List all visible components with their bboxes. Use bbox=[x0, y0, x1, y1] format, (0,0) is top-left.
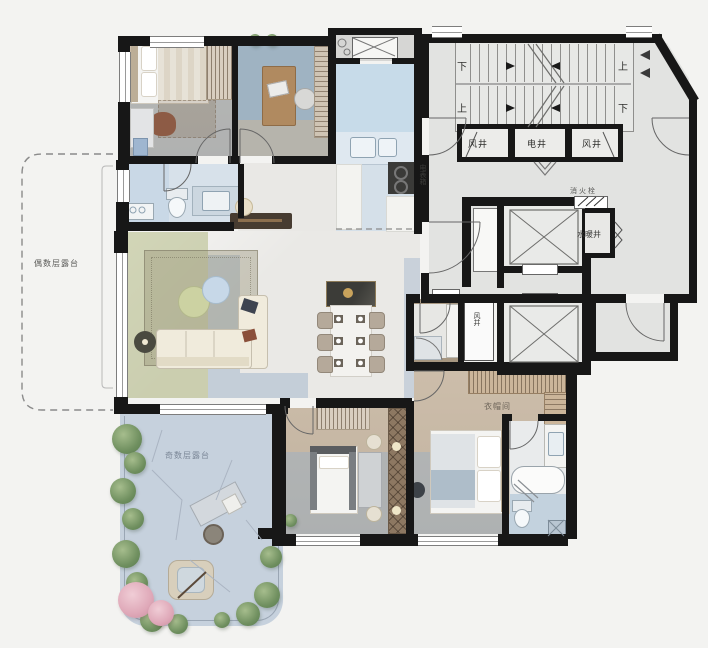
water-shaft-label: 水暖井 bbox=[577, 229, 601, 240]
entry-bath-shaft bbox=[464, 299, 494, 361]
core-wall-right bbox=[689, 96, 697, 303]
living-blue-wash-south bbox=[240, 373, 308, 398]
bedroom2-west-window bbox=[119, 52, 131, 102]
tree bbox=[112, 424, 142, 454]
sideboard-kettle bbox=[343, 288, 353, 298]
living-south-window bbox=[160, 404, 266, 415]
bed2-headboard bbox=[131, 42, 138, 102]
bath-west-window bbox=[117, 170, 130, 202]
study-desk bbox=[262, 66, 296, 126]
bed2-pillow bbox=[141, 46, 157, 71]
fire-pit bbox=[203, 524, 224, 545]
stove-burner bbox=[394, 166, 408, 180]
master-pillow bbox=[477, 436, 501, 468]
wall bbox=[118, 36, 130, 52]
ebath-shower-tray bbox=[414, 336, 442, 360]
wall bbox=[228, 156, 240, 164]
dining-chair bbox=[369, 356, 385, 373]
shaft-label-electric: 电井 bbox=[527, 137, 547, 150]
water-shaft-wall bbox=[585, 253, 615, 258]
suite-east-wall bbox=[566, 371, 577, 539]
elevator-1-cab bbox=[504, 206, 584, 268]
bed3-nightstand bbox=[366, 506, 382, 522]
dining-chair bbox=[317, 356, 333, 373]
bedroom2-wardrobe bbox=[206, 40, 234, 100]
wall bbox=[232, 36, 238, 158]
kitchen-sink bbox=[378, 138, 397, 157]
hydrant-label: 消火栓 bbox=[570, 186, 597, 196]
core-window bbox=[432, 26, 462, 38]
elevator-sub-shaft bbox=[473, 208, 498, 272]
kitchen-counter-east bbox=[386, 196, 416, 232]
core-window bbox=[626, 26, 652, 38]
mbath-sink bbox=[548, 432, 564, 456]
bedroom2-book bbox=[133, 138, 148, 156]
wall bbox=[204, 36, 336, 46]
wall bbox=[118, 102, 130, 162]
wardrobe-knob bbox=[392, 442, 401, 451]
shaft-label-wind-1: 风井 bbox=[468, 137, 488, 150]
bedroom2-window bbox=[150, 36, 204, 48]
even-terrace-inner-line bbox=[102, 166, 113, 388]
master-wardrobe-column bbox=[388, 408, 408, 534]
laundry-counter bbox=[128, 203, 154, 220]
terrace-tub-water bbox=[177, 567, 205, 593]
odd-terrace-label: 奇数层露台 bbox=[165, 450, 210, 461]
vent-shaft-wall bbox=[328, 28, 422, 35]
bed2-duvet bbox=[158, 43, 206, 101]
stair-mid-landing-line bbox=[456, 83, 631, 85]
vent-box bbox=[352, 37, 398, 59]
bed3-side-rail bbox=[349, 452, 356, 510]
bathtub bbox=[511, 466, 565, 494]
bed2-pillow bbox=[141, 72, 157, 97]
dining-chair bbox=[317, 334, 333, 351]
ebath-west-wall bbox=[406, 294, 414, 364]
tree bbox=[260, 546, 282, 568]
alcove-wall bbox=[588, 352, 678, 361]
elevator-wall-left-upper bbox=[462, 197, 471, 287]
suite-west-wall bbox=[406, 411, 414, 536]
sofa-back bbox=[157, 357, 249, 366]
dining-chair bbox=[317, 312, 333, 329]
alcove-wall bbox=[670, 303, 678, 361]
stair-flight-lower bbox=[470, 86, 616, 128]
stair-label-lower-left: 上 bbox=[457, 100, 468, 115]
south-wall bbox=[360, 534, 418, 546]
closet-label: 衣帽间 bbox=[484, 401, 511, 412]
wall bbox=[332, 58, 360, 64]
wall bbox=[114, 231, 128, 253]
dining-chair bbox=[369, 312, 385, 329]
mbath-north-wall bbox=[538, 414, 568, 421]
stair-label-upper-right: 上 bbox=[618, 58, 629, 73]
shaft-divider bbox=[508, 124, 515, 162]
tree bbox=[122, 508, 144, 530]
wall bbox=[114, 404, 160, 414]
terrace-east-wall bbox=[272, 404, 286, 546]
core-wall-bottom bbox=[664, 294, 697, 303]
bed3-nightstand bbox=[366, 434, 382, 450]
stove-burner bbox=[394, 180, 408, 194]
kitchen-counter-west bbox=[336, 164, 362, 230]
water-shaft-wall bbox=[610, 208, 615, 258]
shaft-divider bbox=[565, 124, 572, 162]
stair-label-upper-left: 下 bbox=[457, 58, 468, 73]
elevator-divider bbox=[497, 202, 504, 288]
suite-north-wall bbox=[406, 362, 590, 371]
tree bbox=[110, 478, 136, 504]
meter-box-label: 电表箱 bbox=[418, 164, 428, 185]
wall bbox=[392, 58, 414, 64]
floor-lamp-bulb bbox=[142, 339, 148, 345]
wall bbox=[280, 398, 290, 408]
wall bbox=[116, 222, 234, 231]
tree bbox=[124, 452, 146, 474]
tree bbox=[254, 582, 280, 608]
stair-label-lower-right: 下 bbox=[618, 100, 629, 115]
entry-bath-shaft-label: 风井 bbox=[472, 312, 482, 326]
master-window bbox=[418, 536, 498, 546]
ebath-east-wall bbox=[458, 296, 464, 362]
wardrobe-knob bbox=[392, 506, 401, 515]
even-terrace-dashed-outline bbox=[22, 154, 113, 410]
master-throw bbox=[431, 470, 475, 500]
bed3-bench bbox=[358, 452, 382, 508]
wall bbox=[238, 164, 244, 218]
dining-table bbox=[330, 305, 372, 377]
utility-room-floor bbox=[336, 64, 414, 132]
tree bbox=[236, 602, 260, 626]
elevator-1-door bbox=[522, 264, 558, 275]
south-wall bbox=[272, 534, 296, 546]
neighbor-alcove-floor bbox=[596, 303, 670, 352]
shaft-label-wind-2: 风井 bbox=[582, 137, 602, 150]
wall bbox=[316, 398, 412, 408]
core-wall-left bbox=[421, 34, 429, 118]
stair-flight-upper bbox=[470, 44, 616, 82]
south-wall bbox=[498, 534, 568, 546]
tree bbox=[112, 540, 140, 568]
study-chair bbox=[294, 88, 316, 110]
hall-console-runner bbox=[238, 219, 282, 222]
even-terrace-label: 偶数层露台 bbox=[34, 258, 79, 269]
elevator-wall-top bbox=[462, 197, 590, 206]
mbath-west-wall bbox=[502, 414, 509, 539]
floor-plan: 偶数层露台 奇数层露台 风井 电井 风井 消火栓 水暖井 电表箱 衣帽间 风井 … bbox=[0, 0, 708, 648]
wall bbox=[414, 64, 422, 234]
dining-chair bbox=[369, 334, 385, 351]
wall bbox=[272, 156, 336, 164]
pink-tree bbox=[148, 600, 174, 626]
master-pillow bbox=[477, 470, 501, 502]
bed3-pillow bbox=[319, 456, 349, 469]
wall bbox=[126, 156, 198, 164]
bedroom3-window bbox=[296, 536, 360, 546]
kitchen-sink bbox=[350, 137, 376, 158]
tree bbox=[214, 612, 230, 628]
bed3-side-rail bbox=[310, 452, 317, 510]
vanity-sink bbox=[202, 191, 230, 211]
bedroom3-wardrobe bbox=[316, 406, 370, 430]
living-west-window bbox=[116, 253, 128, 397]
coffee-table-blue bbox=[202, 276, 230, 304]
elevator-2-cab bbox=[504, 302, 584, 366]
